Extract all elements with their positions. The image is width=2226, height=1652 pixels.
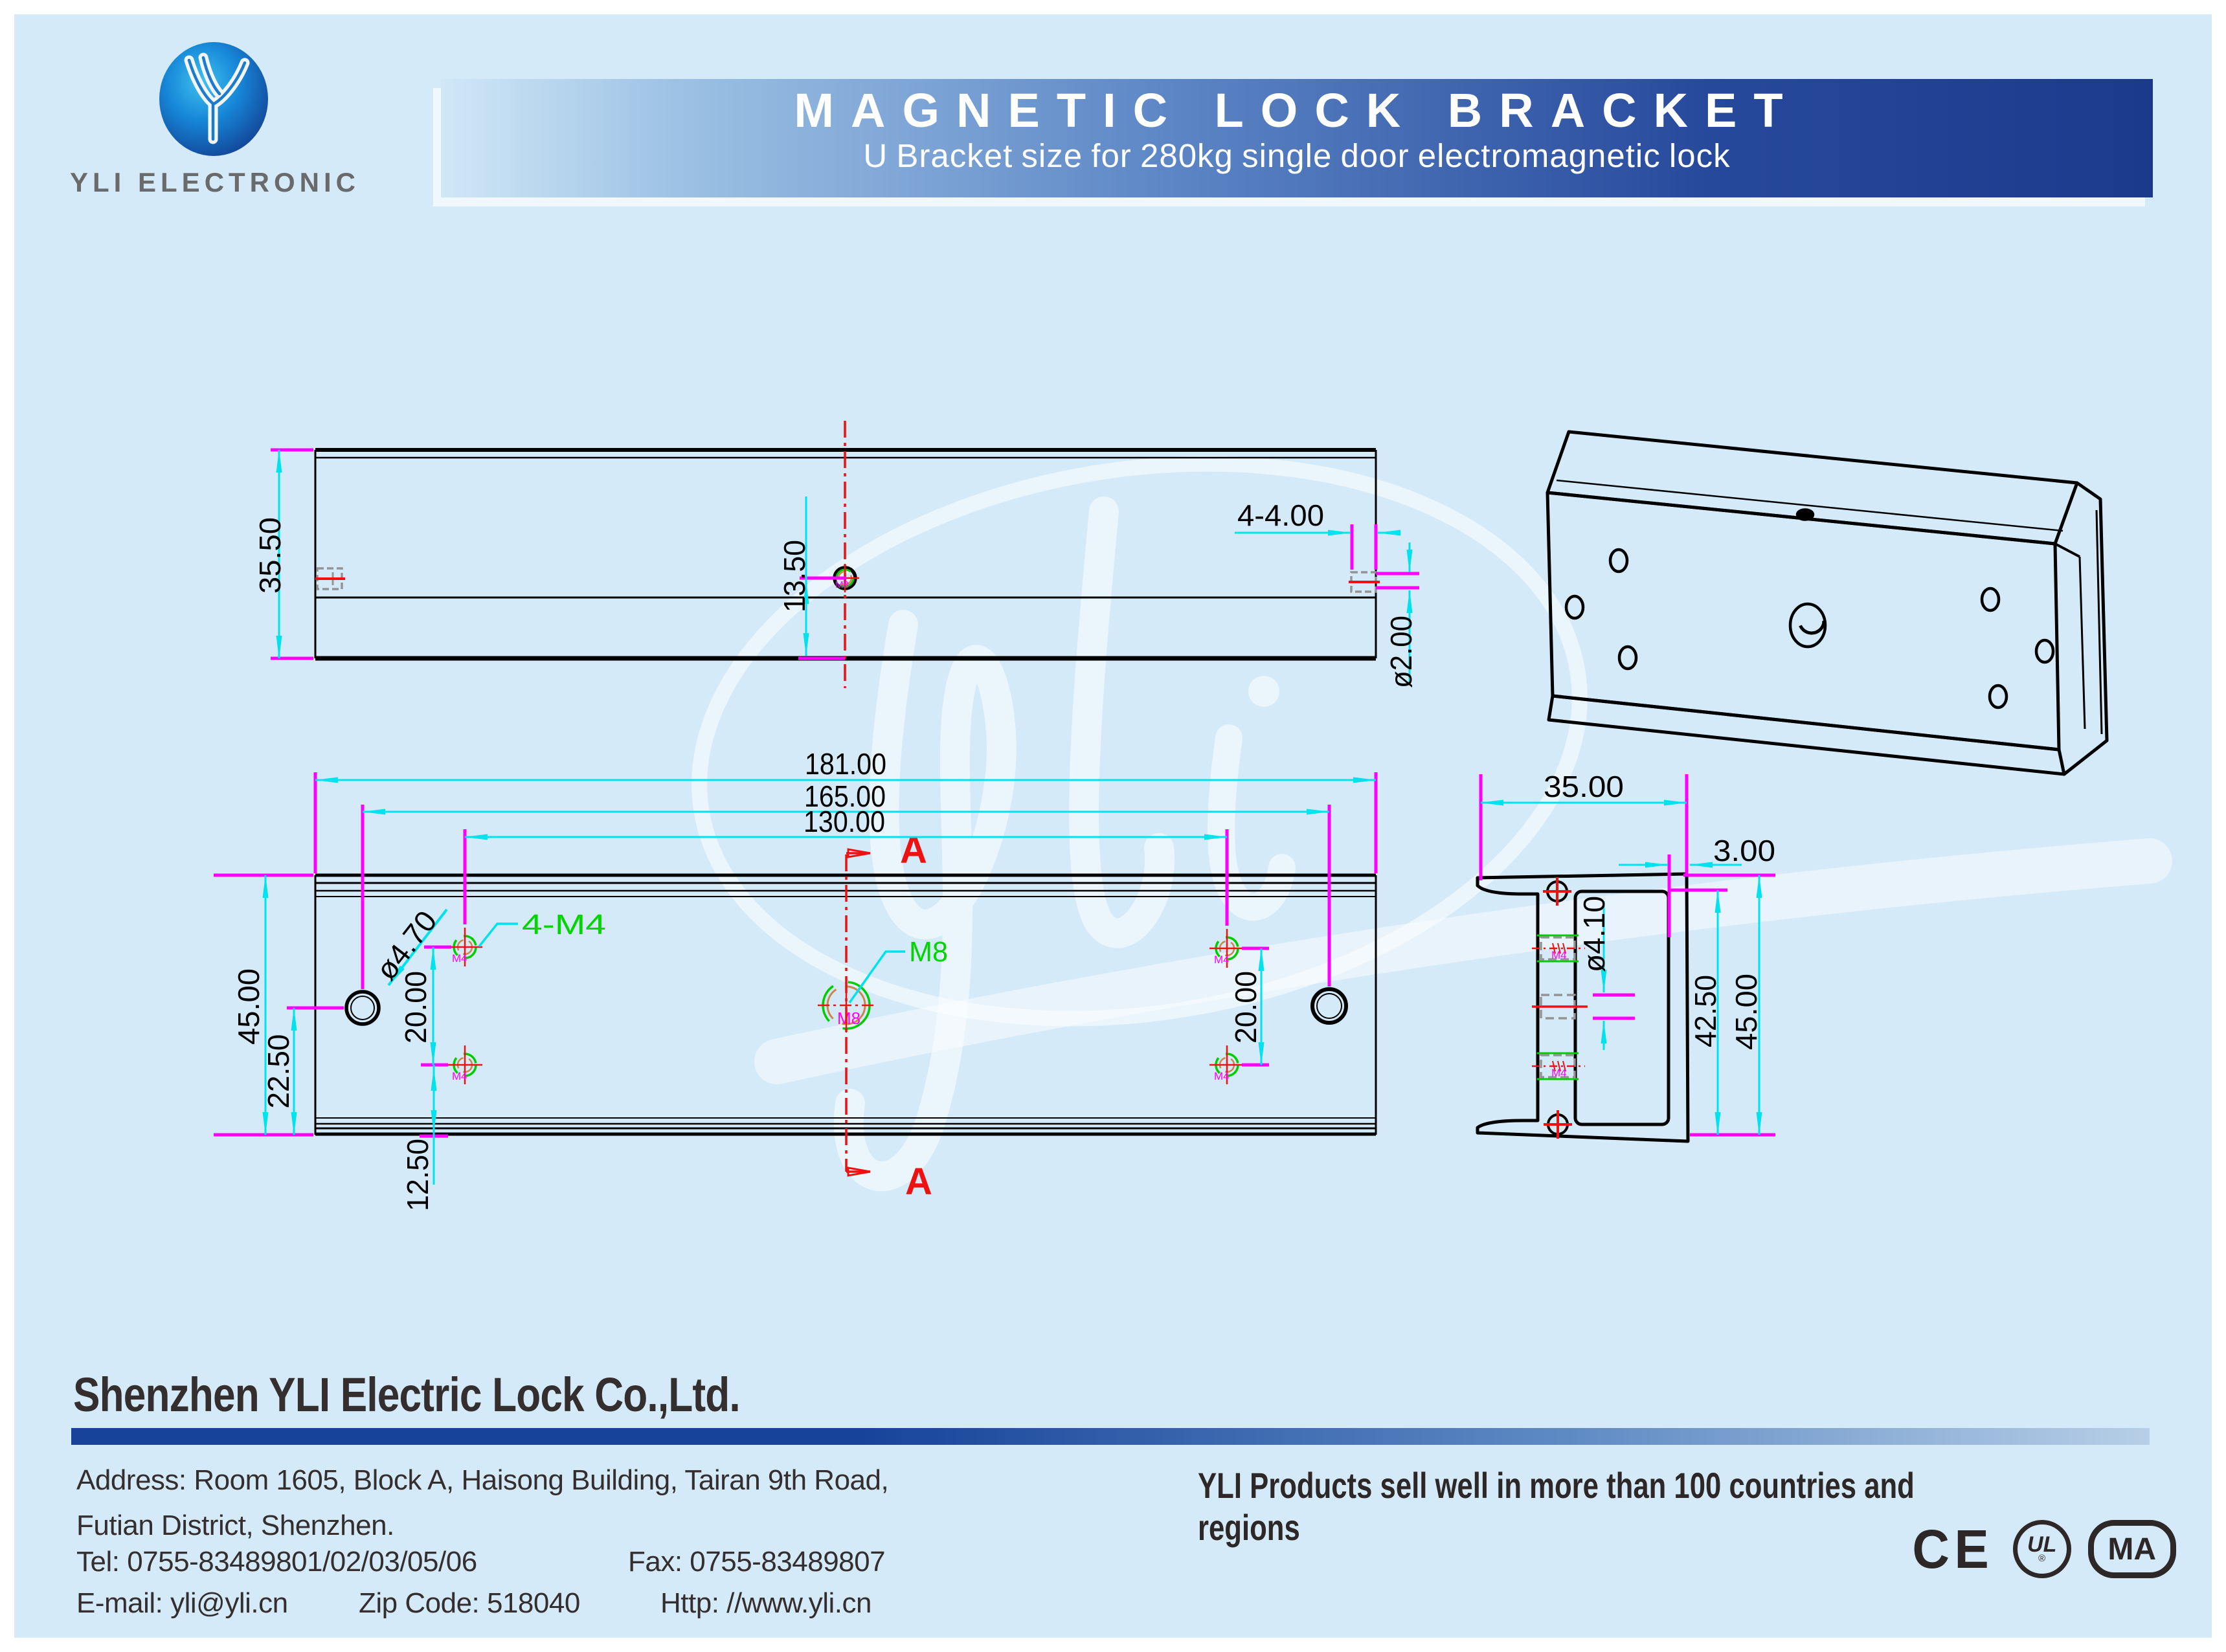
m8-tiny-label: M8	[837, 1009, 860, 1028]
dim-length: 181.00	[805, 747, 886, 781]
iso-holes	[1566, 510, 2053, 708]
ul-mark-label: UL	[2027, 1535, 2056, 1554]
yli-logo-icon	[158, 41, 269, 157]
ul-registered-symbol: ®	[2038, 1554, 2045, 1563]
dim-side-hole: ø4.10	[1577, 896, 1611, 972]
dim-side-width: 35.00	[1544, 770, 1624, 803]
dim-side-inner-height: 42.50	[1689, 975, 1722, 1047]
dim-end-slot: 4-4.00	[1237, 498, 1324, 532]
email-line: E-mail: yli@yli.cn	[76, 1587, 288, 1620]
dim-side-height: 45.00	[1729, 974, 1763, 1050]
certification-marks: CE UL ® MA	[1910, 1520, 2176, 1578]
zip-line: Zip Code: 518040	[359, 1587, 580, 1620]
corner-hole-left	[346, 992, 379, 1024]
iso-front-face	[1547, 493, 2059, 750]
front-view: M4 M8 ø4.70 4-M4 M8	[194, 388, 1376, 1211]
dim-center-offset: 22.50	[262, 1034, 295, 1109]
address-line2: Futian District, Shenzhen.	[76, 1510, 394, 1542]
footer-divider	[71, 1428, 2150, 1445]
iso-view	[1547, 432, 2107, 774]
m8-screw-center	[1532, 995, 1588, 1018]
page-subtitle: U Bracket size for 280kg single door ele…	[441, 139, 2153, 173]
section-letter-bottom: A	[905, 1161, 932, 1203]
dim-top-hole-offset: 13.50	[778, 540, 811, 612]
cad-drawing: M8	[194, 388, 2226, 1243]
top-view: M8	[253, 421, 1419, 688]
fax-line: Fax: 0755-83489807	[628, 1546, 885, 1578]
dim-m4-pitch-right: 20.00	[1229, 971, 1263, 1044]
dim-top-height: 35.50	[253, 517, 287, 594]
ce-mark-icon: CE	[1912, 1522, 1994, 1576]
dim-height: 45.00	[232, 968, 265, 1045]
iso-bottom-flange	[1549, 696, 2064, 774]
dim-end-slot-dia: ø2.00	[1384, 616, 1418, 688]
cma-mark-icon: MA	[2088, 1520, 2176, 1578]
side-view-dims: 35.00 3.00 ø4.10 42.50 45.00	[1481, 770, 1775, 1135]
page-title: MAGNETIC LOCK BRACKET	[441, 87, 2153, 135]
ul-mark-icon: UL ®	[2013, 1520, 2071, 1578]
datasheet: YLI ELECTRONIC MAGNETIC LOCK BRACKET U B…	[0, 0, 2226, 1652]
dim-m4-span: 130.00	[804, 805, 885, 838]
company-name: Shenzhen YLI Electric Lock Co.,Ltd.	[73, 1367, 740, 1422]
end-clip-left	[315, 568, 345, 589]
dim-m4-pitch-left: 20.00	[399, 971, 433, 1044]
top-view-dims: 35.50 13.50 4-4.00 ø2.00	[253, 450, 1419, 688]
m8-callout: M8	[909, 936, 948, 968]
countersunk-screws	[1543, 877, 1572, 1139]
tel-line: Tel: 0755-83489801/02/03/05/06	[76, 1546, 477, 1578]
top-hole-m8-label: M8	[835, 579, 849, 590]
web-line: Http: //www.yli.cn	[660, 1587, 871, 1620]
m4-callout: 4-M4	[522, 909, 606, 941]
iso-right-end	[2064, 483, 2107, 774]
dim-side-wall: 3.00	[1713, 834, 1775, 867]
header-banner: MAGNETIC LOCK BRACKET U Bracket size for…	[441, 79, 2153, 197]
m4-screw-bottom	[1532, 1053, 1585, 1079]
dim-m4-to-edge: 12.50	[401, 1139, 434, 1211]
brand-text: YLI ELECTRONIC	[70, 167, 360, 198]
section-letter-top: A	[900, 829, 927, 871]
corner-hole-right	[1312, 989, 1346, 1023]
tagline: YLI Products sell well in more than 100 …	[1198, 1464, 2000, 1548]
address-line1: Address: Room 1605, Block A, Haisong Bui…	[76, 1464, 888, 1497]
